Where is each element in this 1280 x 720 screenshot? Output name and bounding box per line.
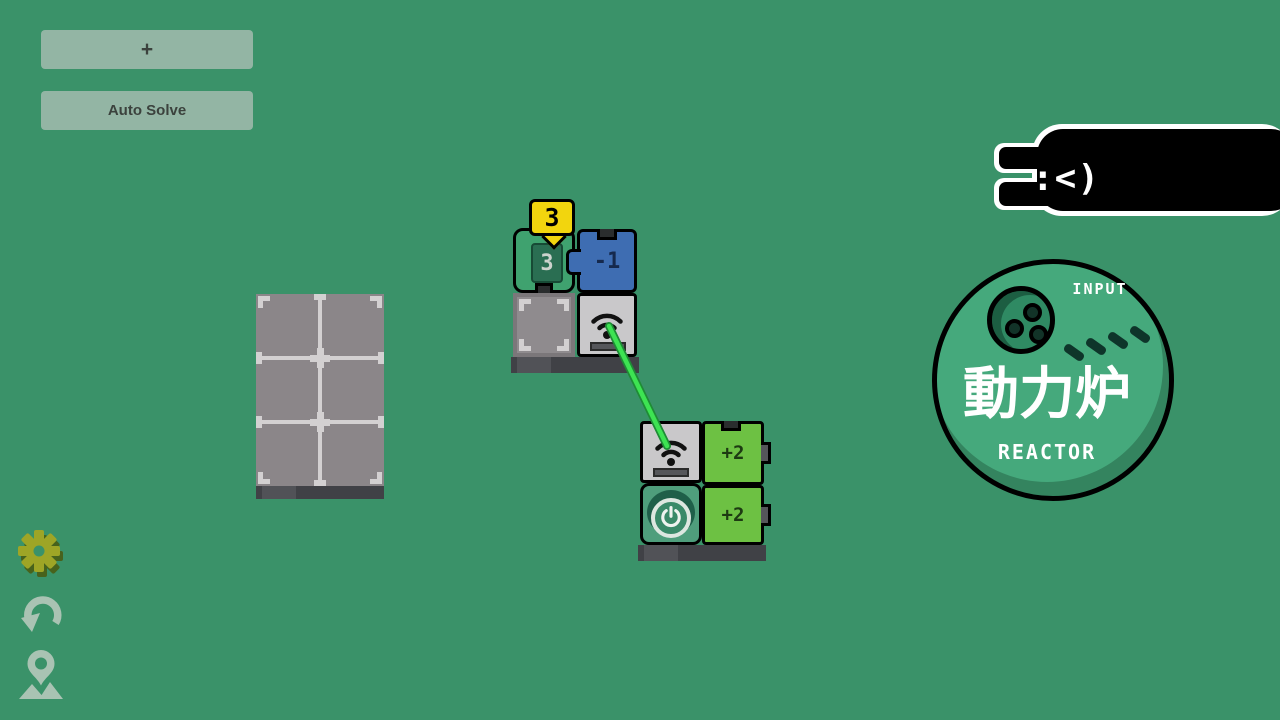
plus-two-piece-bottom[interactable]: +2 bbox=[702, 485, 764, 545]
piece-tab bbox=[566, 249, 581, 275]
power-piece[interactable] bbox=[640, 483, 702, 545]
modifier-piece[interactable]: -1 bbox=[577, 229, 637, 293]
upper-group-base bbox=[511, 357, 639, 373]
port-dot bbox=[1029, 325, 1048, 344]
undo-button[interactable] bbox=[19, 592, 65, 639]
value-badge: 3 bbox=[529, 199, 575, 236]
piece-tray bbox=[590, 342, 626, 351]
add-piece-button[interactable]: + bbox=[41, 30, 253, 69]
board-marker bbox=[258, 296, 270, 308]
signal-dash bbox=[1106, 331, 1129, 351]
gear-icon bbox=[18, 530, 64, 578]
port-dot bbox=[1005, 319, 1024, 338]
signal-dash bbox=[1084, 337, 1107, 357]
plus-two-value: +2 bbox=[722, 442, 745, 464]
reactor-label: REACTOR bbox=[957, 440, 1137, 464]
board-base bbox=[256, 486, 384, 499]
undo-icon bbox=[19, 592, 65, 636]
reactor-kanji-title: 動力炉 bbox=[937, 364, 1157, 426]
settings-button[interactable] bbox=[18, 530, 64, 581]
map-pin-icon bbox=[17, 648, 65, 700]
piece-notch bbox=[597, 229, 617, 240]
piece-tab bbox=[761, 504, 771, 526]
piece-notch bbox=[721, 421, 741, 431]
game-screen: + Auto Solve 3 -1 bbox=[0, 0, 1280, 720]
auto-solve-button[interactable]: Auto Solve bbox=[41, 91, 253, 130]
signal-piece-lower[interactable] bbox=[640, 421, 702, 483]
piece-notch bbox=[535, 283, 553, 293]
board-marker bbox=[314, 480, 326, 486]
piece-tray bbox=[653, 468, 689, 477]
reactor-input-label: INPUT bbox=[1045, 280, 1155, 298]
reactor-badge: INPUT 動力炉 REACTOR bbox=[932, 259, 1174, 501]
board-marker bbox=[256, 352, 262, 364]
board-marker bbox=[258, 472, 270, 484]
board-marker bbox=[318, 294, 322, 486]
level-select-button[interactable] bbox=[17, 648, 65, 703]
slot-corner bbox=[557, 339, 569, 351]
slot-corner bbox=[557, 299, 569, 311]
board-marker bbox=[378, 352, 384, 364]
slot-corner bbox=[519, 339, 531, 351]
plus-two-value: +2 bbox=[722, 504, 745, 526]
slot-corner bbox=[519, 299, 531, 311]
plus-two-piece-top[interactable]: +2 bbox=[702, 421, 764, 485]
board-marker bbox=[317, 412, 324, 432]
creature-character: :<) bbox=[988, 123, 1280, 221]
modifier-value: -1 bbox=[594, 249, 621, 274]
board-marker bbox=[370, 296, 382, 308]
creature-face: :<) bbox=[1032, 158, 1100, 199]
board-marker bbox=[314, 294, 326, 300]
counter-plate: 3 bbox=[531, 243, 563, 283]
signal-dash bbox=[1128, 325, 1151, 345]
board-marker bbox=[256, 416, 262, 428]
signal-dash bbox=[1062, 343, 1085, 363]
port-dot bbox=[1023, 303, 1042, 322]
power-icon bbox=[658, 505, 684, 531]
puzzle-board[interactable] bbox=[256, 294, 384, 486]
board-marker bbox=[317, 348, 324, 368]
board-marker bbox=[378, 416, 384, 428]
piece-tab bbox=[761, 442, 771, 464]
lower-group-base bbox=[638, 545, 766, 561]
board-marker bbox=[370, 472, 382, 484]
empty-board-slot[interactable] bbox=[513, 293, 575, 357]
wifi-icon bbox=[652, 436, 690, 468]
signal-piece-upper[interactable] bbox=[577, 293, 637, 357]
power-button[interactable] bbox=[651, 498, 691, 538]
wifi-icon bbox=[588, 309, 626, 341]
